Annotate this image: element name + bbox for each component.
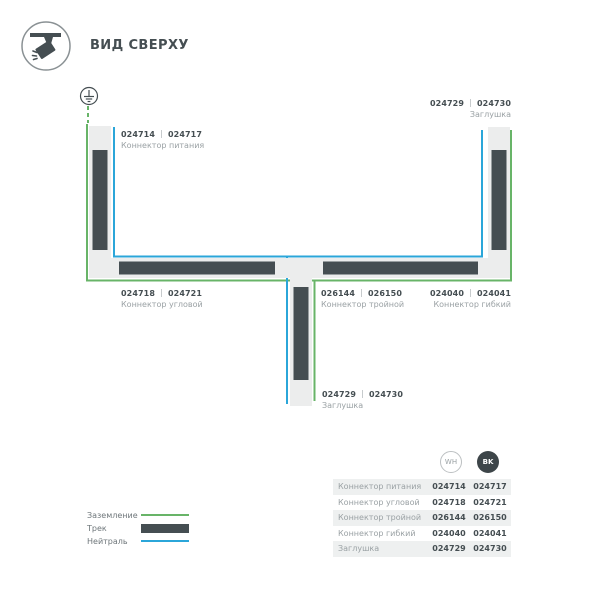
table-row: Коннектор тройной 026144 026150 bbox=[333, 510, 511, 526]
part-name: Коннектор гибкий bbox=[430, 299, 511, 310]
divider bbox=[470, 289, 471, 297]
row-wh-number: 024718 bbox=[429, 498, 469, 507]
divider bbox=[161, 130, 162, 138]
divider bbox=[361, 289, 362, 297]
part-name: Заглушка bbox=[322, 400, 403, 411]
part-number-wh: 024729 bbox=[430, 99, 464, 108]
part-name: Коннектор питания bbox=[121, 140, 204, 151]
part-number-wh: 024714 bbox=[121, 130, 155, 139]
neutral-line-swatch bbox=[141, 540, 189, 542]
legend-label: Заземление bbox=[87, 511, 139, 520]
part-number-wh: 026144 bbox=[321, 289, 355, 298]
label-power-connector: 024714024717 Коннектор питания bbox=[121, 129, 204, 151]
earth-ground-icon bbox=[81, 88, 98, 105]
track-layout-drawing bbox=[0, 0, 600, 430]
legend-item-neutral: Нейтраль bbox=[87, 535, 189, 547]
ground-line-swatch bbox=[141, 514, 189, 516]
table-row: Коннектор гибкий 024040 024041 bbox=[333, 526, 511, 542]
row-bk-number: 024721 bbox=[469, 498, 511, 507]
row-wh-number: 024040 bbox=[429, 529, 469, 538]
part-number-bk: 024730 bbox=[369, 390, 403, 399]
part-number-wh: 024040 bbox=[430, 289, 464, 298]
part-name: Коннектор тройной bbox=[321, 299, 404, 310]
table-row: Коннектор питания 024714 024717 bbox=[333, 479, 511, 495]
parts-table-rows: Коннектор питания 024714 024717 Коннекто… bbox=[333, 479, 511, 557]
row-name: Коннектор питания bbox=[333, 482, 429, 491]
row-name: Коннектор гибкий bbox=[333, 529, 429, 538]
legend: Заземление Трек Нейтраль bbox=[87, 509, 189, 548]
row-wh-number: 024714 bbox=[429, 482, 469, 491]
track-bar-swatch bbox=[141, 524, 189, 533]
table-row: Заглушка 024729 024730 bbox=[333, 541, 511, 557]
row-wh-number: 024729 bbox=[429, 544, 469, 553]
track-insert bbox=[93, 150, 507, 380]
legend-item-track: Трек bbox=[87, 522, 189, 534]
page-title: ВИД СВЕРХУ bbox=[90, 38, 189, 53]
row-name: Коннектор тройной bbox=[333, 513, 429, 522]
part-number-bk: 024721 bbox=[168, 289, 202, 298]
part-number-bk: 024730 bbox=[477, 99, 511, 108]
label-triple-connector: 026144026150 Коннектор тройной bbox=[321, 288, 404, 310]
divider bbox=[362, 390, 363, 398]
table-row: Коннектор угловой 024718 024721 bbox=[333, 495, 511, 511]
part-number-bk: 024041 bbox=[477, 289, 511, 298]
label-endcap-top: 024729024730 Заглушка bbox=[430, 98, 511, 120]
legend-item-ground: Заземление bbox=[87, 509, 189, 521]
part-name: Коннектор угловой bbox=[121, 299, 203, 310]
row-name: Коннектор угловой bbox=[333, 498, 429, 507]
divider bbox=[161, 289, 162, 297]
label-corner-connector: 024718024721 Коннектор угловой bbox=[121, 288, 203, 310]
row-name: Заглушка bbox=[333, 544, 429, 553]
divider bbox=[470, 99, 471, 107]
part-name: Заглушка bbox=[430, 109, 511, 120]
part-number-wh: 024729 bbox=[322, 390, 356, 399]
label-endcap-bottom: 024729024730 Заглушка bbox=[322, 389, 403, 411]
track-spotlight-icon bbox=[20, 20, 72, 72]
part-number-bk: 026150 bbox=[368, 289, 402, 298]
legend-label: Нейтраль bbox=[87, 537, 139, 546]
label-flexible-connector: 024040024041 Коннектор гибкий bbox=[430, 288, 511, 310]
color-badge-bk: BK bbox=[477, 451, 499, 473]
row-bk-number: 024730 bbox=[469, 544, 511, 553]
row-bk-number: 024041 bbox=[469, 529, 511, 538]
track-body bbox=[89, 126, 510, 406]
row-wh-number: 026144 bbox=[429, 513, 469, 522]
neutral-wire-blue bbox=[114, 127, 482, 404]
row-bk-number: 024717 bbox=[469, 482, 511, 491]
color-badge-wh: WH bbox=[440, 451, 462, 473]
row-bk-number: 026150 bbox=[469, 513, 511, 522]
top-view-diagram-page: ВИД СВЕРХУ bbox=[0, 0, 600, 600]
part-number-bk: 024717 bbox=[168, 130, 202, 139]
legend-label: Трек bbox=[87, 524, 139, 533]
part-number-wh: 024718 bbox=[121, 289, 155, 298]
